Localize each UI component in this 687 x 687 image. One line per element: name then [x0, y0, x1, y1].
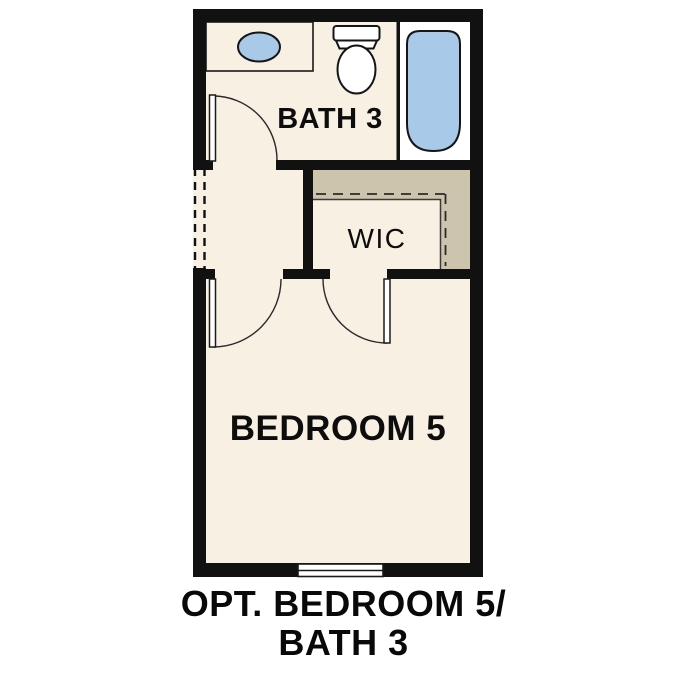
wall-bedroom-stub-left — [193, 269, 215, 279]
floorplan-canvas: BATH 3 WIC BEDROOM 5 OPT. BEDROOM 5/ BAT… — [0, 0, 687, 687]
plan-caption-line1: OPT. BEDROOM 5/ — [0, 584, 687, 623]
sink-icon — [238, 33, 280, 62]
hall-floor — [193, 160, 303, 279]
bath-door-leaf — [210, 95, 216, 161]
wall-bedroom-right — [387, 269, 483, 279]
wall-tub-partition — [397, 22, 401, 160]
bath-room-label: BATH 3 — [240, 103, 420, 136]
wall-top — [193, 9, 483, 22]
bedroom-door-leaf — [210, 279, 216, 347]
wic-door-leaf — [384, 279, 390, 343]
wall-bedroom-middle — [283, 269, 330, 279]
toilet-icon — [334, 26, 380, 94]
wall-left-lower — [193, 268, 206, 577]
wall-hall-wic-divider — [303, 160, 313, 279]
wall-left-upper — [193, 9, 206, 168]
wall-right — [470, 9, 483, 577]
toilet-tank — [334, 26, 380, 41]
plan-caption: OPT. BEDROOM 5/ BATH 3 — [0, 584, 687, 662]
bedroom-room-label: BEDROOM 5 — [206, 409, 470, 449]
wic-room-label: WIC — [316, 223, 438, 255]
toilet-bowl — [338, 46, 376, 94]
plan-caption-line2: BATH 3 — [0, 623, 687, 662]
window — [298, 564, 383, 577]
